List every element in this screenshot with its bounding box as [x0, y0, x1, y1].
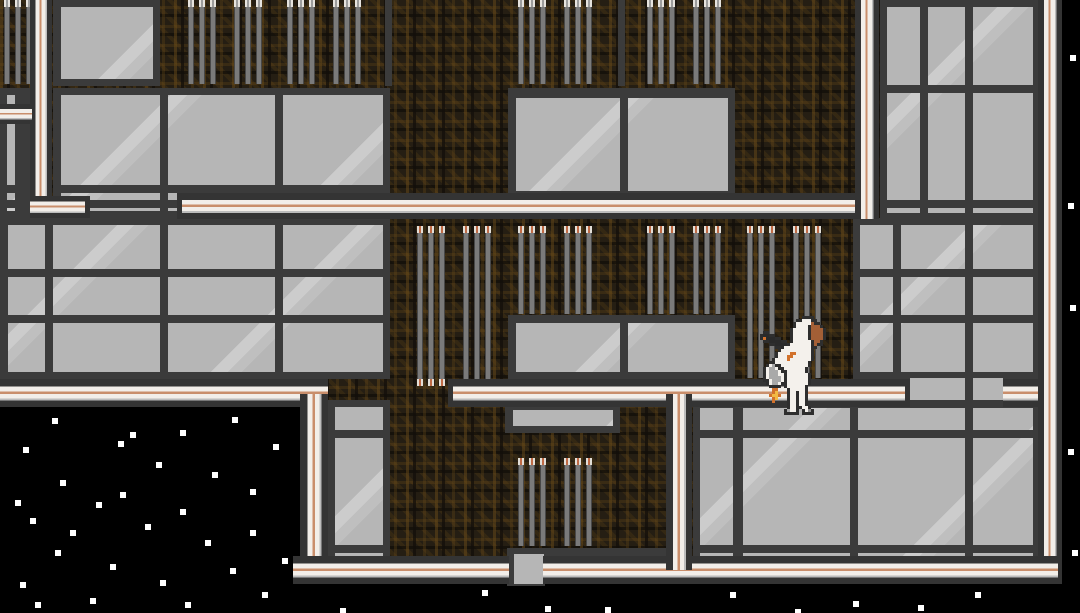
pipe-cluster — [647, 0, 675, 84]
star — [232, 417, 238, 423]
star — [230, 568, 236, 574]
star — [482, 590, 488, 596]
wall-tile-panel — [327, 400, 390, 563]
star — [35, 602, 41, 608]
star — [975, 592, 981, 598]
pipe-cap — [564, 0, 592, 7]
pipe-cap — [333, 0, 361, 7]
star — [250, 489, 256, 495]
game-viewport[interactable] — [0, 0, 1080, 613]
sprite-pixels — [808, 364, 811, 367]
sprite-pixels — [772, 400, 775, 403]
pipe-cluster — [564, 226, 592, 314]
wall-tile-panel — [508, 88, 735, 198]
pipe-cap — [287, 0, 315, 7]
grout-bar — [618, 0, 625, 86]
star — [55, 550, 61, 556]
wall-tile-panel — [53, 0, 160, 86]
striped-conduit — [30, 196, 90, 218]
star — [340, 608, 346, 613]
star — [156, 462, 162, 468]
star — [853, 601, 859, 607]
star — [23, 447, 29, 453]
pipe-cap — [518, 0, 546, 7]
star — [545, 606, 551, 612]
pipe-cluster — [463, 226, 491, 386]
striped-conduit — [293, 556, 509, 584]
star — [795, 609, 801, 613]
pipe-cap — [693, 0, 721, 7]
star — [212, 472, 218, 478]
star — [20, 582, 26, 588]
star — [180, 430, 186, 436]
pipe-cap — [647, 226, 675, 233]
star — [273, 444, 279, 450]
pipe-cap — [518, 226, 546, 233]
space-region — [0, 400, 302, 613]
star — [1072, 550, 1078, 556]
star — [605, 607, 611, 613]
wall-tile-panel — [853, 218, 1040, 379]
striped-conduit — [666, 394, 692, 570]
pipe-cap — [693, 226, 721, 233]
star — [90, 598, 96, 604]
star — [180, 509, 186, 515]
striped-conduit — [177, 193, 857, 219]
wall-tile-panel — [0, 218, 390, 379]
pipe-cluster — [333, 0, 361, 84]
star — [110, 564, 116, 570]
pipe-cap — [188, 0, 216, 7]
sprite-pixels — [808, 382, 811, 385]
pipe-cap — [747, 226, 775, 233]
pipe-cap — [518, 458, 546, 465]
pipe-cluster — [647, 226, 675, 314]
star — [1070, 305, 1076, 311]
pipe-cap — [234, 0, 262, 7]
star — [130, 432, 136, 438]
star — [1068, 203, 1074, 209]
wall-tile-panel — [505, 403, 620, 433]
star — [1068, 449, 1074, 455]
star — [96, 502, 102, 508]
star — [250, 530, 256, 536]
striped-conduit — [0, 104, 32, 124]
sprite-pixels — [778, 394, 781, 397]
pipe-cap — [417, 379, 445, 386]
grout-bar — [385, 0, 392, 86]
wall-tile-panel — [880, 0, 1040, 220]
star — [15, 500, 21, 506]
star — [145, 524, 151, 530]
pipe-cluster — [287, 0, 315, 84]
pipe-cap — [417, 226, 445, 233]
pipe-cluster — [188, 0, 216, 84]
astronaut-sprite — [760, 316, 832, 415]
star — [118, 441, 124, 447]
striped-conduit — [1038, 0, 1062, 584]
star — [918, 605, 924, 611]
sprite-pixels — [775, 397, 778, 400]
pipe-cap — [647, 0, 675, 7]
sprite-pixels — [823, 337, 826, 340]
pipe-cluster — [234, 0, 262, 84]
star — [52, 418, 58, 424]
star — [205, 540, 211, 546]
wall-tile-panel — [508, 315, 735, 379]
sprite-pixels — [802, 412, 814, 415]
pipe-cluster — [693, 226, 721, 314]
pipe-cap — [793, 226, 821, 233]
pipe-cluster — [693, 0, 721, 84]
striped-conduit — [0, 379, 328, 407]
pipe-cluster — [417, 226, 445, 386]
pipe-cap — [463, 226, 491, 233]
wall-tile-panel — [693, 401, 1040, 563]
star — [60, 480, 66, 486]
star — [282, 558, 288, 564]
star — [1070, 55, 1076, 61]
pipe-cluster — [564, 0, 592, 84]
pipe-cap — [564, 226, 592, 233]
pipe-cluster — [4, 0, 32, 84]
striped-conduit — [300, 394, 328, 578]
sprite-pixels — [784, 412, 799, 415]
striped-conduit — [30, 0, 52, 218]
star — [30, 518, 36, 524]
star — [185, 602, 191, 608]
star — [262, 592, 268, 598]
star — [70, 530, 76, 536]
sprite-pixels — [817, 343, 823, 346]
striped-conduit — [543, 556, 1058, 584]
wall-tile-panel — [507, 548, 545, 586]
star — [160, 580, 166, 586]
star — [730, 592, 736, 598]
pipe-cap — [4, 0, 32, 7]
striped-conduit — [855, 0, 879, 219]
star — [120, 492, 126, 498]
pipe-cluster — [518, 458, 546, 546]
sprite-pixels — [811, 358, 814, 361]
pipe-cluster — [518, 226, 546, 314]
pipe-cluster — [518, 0, 546, 84]
pipe-cap — [564, 458, 592, 465]
pipe-cluster — [564, 458, 592, 546]
